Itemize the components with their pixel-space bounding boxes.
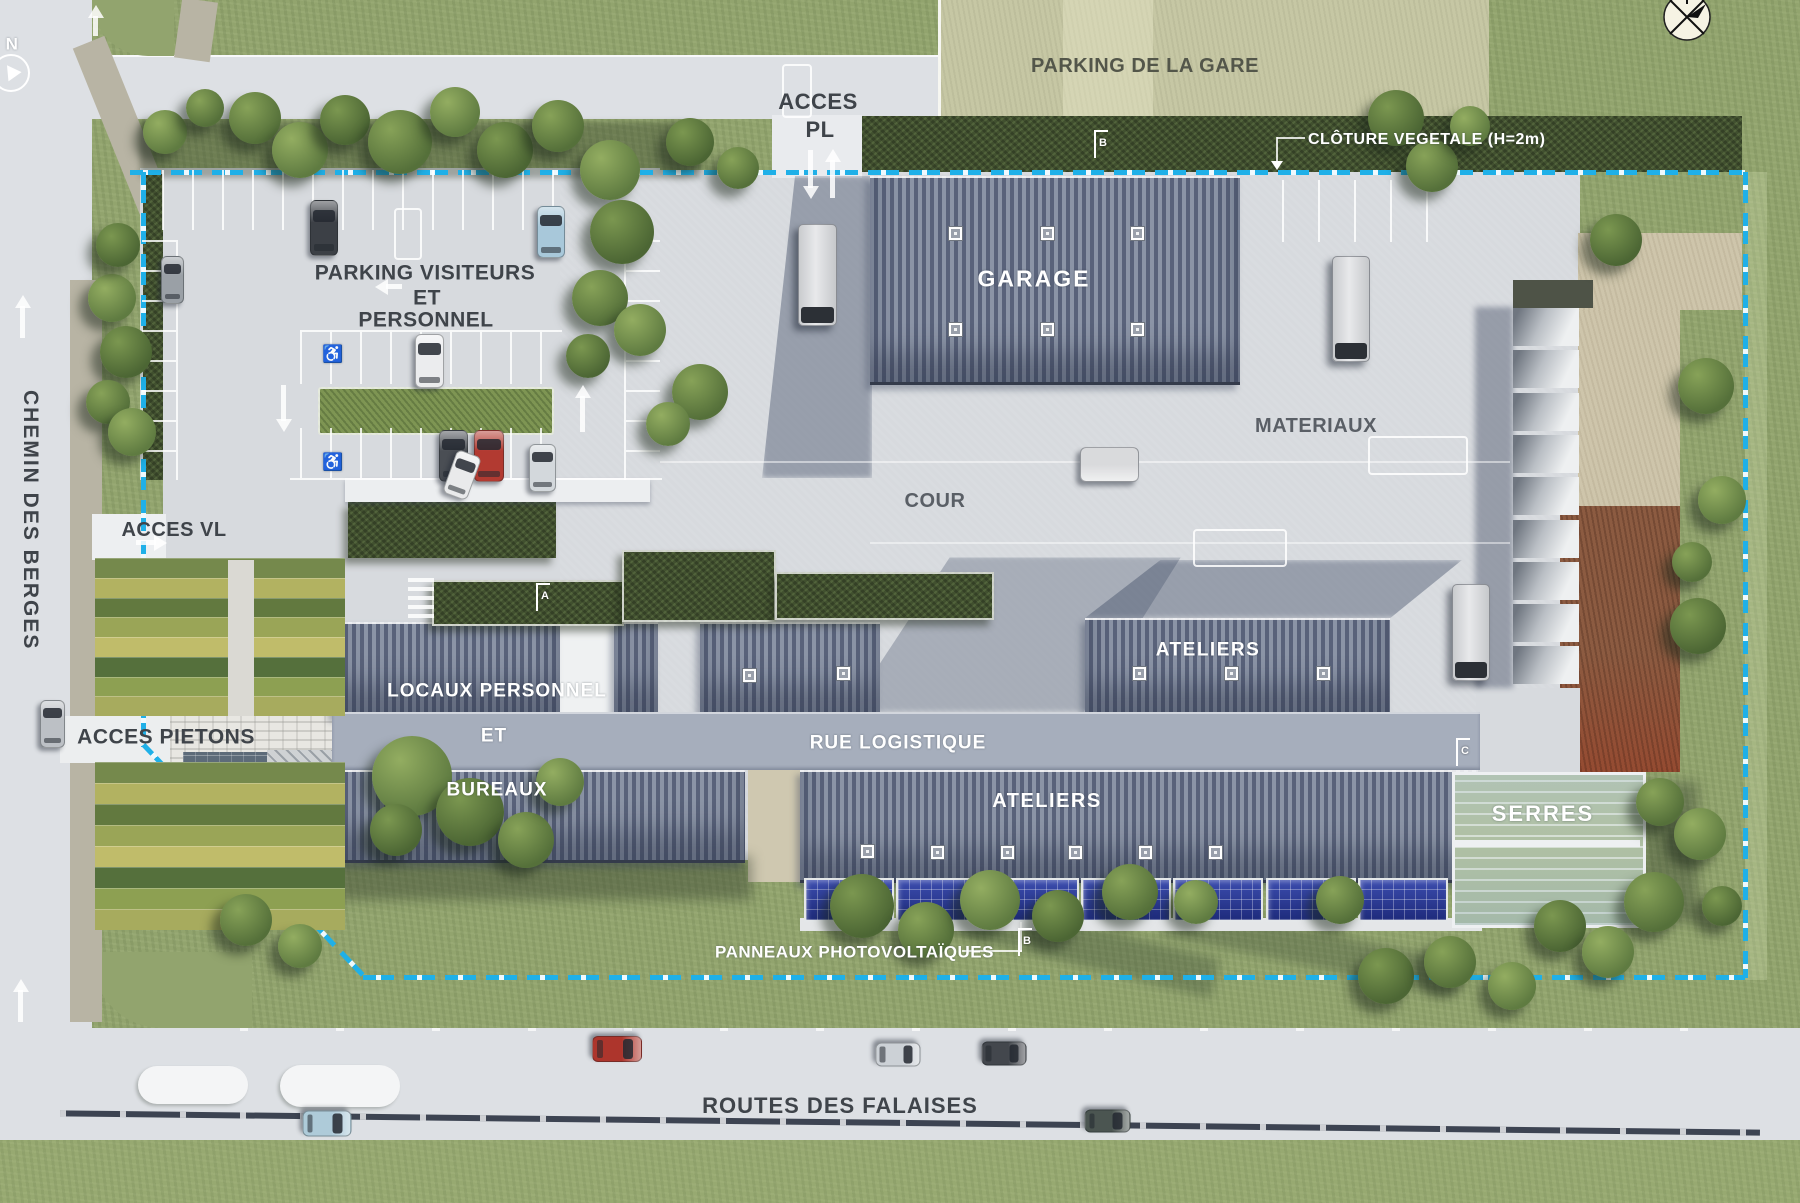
skylight-icon [1224, 666, 1239, 681]
skylight-icon [930, 845, 945, 860]
tree [229, 92, 281, 144]
car [161, 256, 184, 304]
garden-path [228, 560, 254, 716]
tree [1672, 542, 1712, 582]
stall-line [462, 170, 464, 230]
tree [646, 402, 690, 446]
label-et: ET [481, 727, 507, 746]
tree [1636, 778, 1684, 826]
garden-strip [95, 677, 345, 697]
stall-line [360, 428, 362, 478]
crosswalk-bar [408, 596, 434, 600]
tree [1488, 962, 1536, 1010]
skylight-icon [1130, 226, 1145, 241]
label-acces-pl-1: ACCES [778, 91, 858, 113]
tree [566, 334, 610, 378]
skylight-icon [1130, 322, 1145, 337]
lawn-bottom-tint [0, 1140, 1800, 1203]
tree [614, 304, 666, 356]
crosswalk-bar [408, 578, 434, 582]
car-rear-window [986, 1045, 991, 1061]
stall-line [1354, 180, 1356, 242]
top-hedge-band [862, 116, 1742, 172]
garden-strip [95, 696, 345, 716]
stall-line [222, 170, 224, 230]
tree [1670, 598, 1726, 654]
parking-median [318, 387, 554, 435]
label-panneaux: PANNEAUX PHOTOVOLTAÏQUES [715, 944, 994, 961]
stall-line [626, 270, 660, 272]
car-rear-window [597, 1040, 603, 1058]
label-routes-des-falaises: ROUTES DES FALAISES [702, 1095, 978, 1117]
court-lane-line [870, 542, 1510, 544]
stall-line [390, 332, 392, 384]
building-north-wing [700, 622, 880, 717]
material-bay [1513, 308, 1579, 346]
green-roof-hedge [775, 572, 994, 620]
garden-strip [95, 637, 345, 657]
material-bay [1513, 435, 1579, 473]
label-cloture: CLÔTURE VEGETALE (H=2m) [1308, 132, 1545, 148]
garden-strip [95, 804, 345, 825]
truck [1452, 584, 1490, 681]
car-rear-window [1089, 1114, 1094, 1129]
car-windshield [43, 708, 62, 718]
vehicle-outline [1368, 436, 1468, 475]
truck-cab [1455, 662, 1487, 678]
tree [532, 100, 584, 152]
arrow-head-icon [803, 186, 819, 199]
label-cour: COUR [905, 491, 966, 511]
arrow-shaft [20, 306, 25, 338]
vehicle-outline [394, 208, 422, 260]
car-rear-window [447, 484, 466, 495]
tree [1590, 214, 1642, 266]
compass-rose-icon [1660, 0, 1714, 48]
section-marker-b-bottom: B [1018, 928, 1044, 958]
section-marker-b-top: B [1094, 130, 1120, 160]
skylight-icon [948, 226, 963, 241]
car [876, 1042, 921, 1066]
crosswalk-bar [408, 614, 434, 618]
tree [1424, 936, 1476, 988]
car [1084, 1110, 1130, 1133]
skylight-icon [1316, 666, 1331, 681]
car [529, 444, 556, 492]
garden-strip [95, 762, 345, 783]
tree [320, 95, 370, 145]
stall-line [626, 360, 660, 362]
crosswalk-bar [408, 587, 434, 591]
car-windshield [442, 439, 465, 450]
truck [1332, 256, 1370, 362]
tree [370, 804, 422, 856]
site-plan: ♿ ♿ PARKING DE LA GARE ACCES PL CLÔTURE … [0, 0, 1800, 1203]
arrow-shaft [830, 160, 835, 198]
arrow-shaft [580, 396, 585, 432]
car-rear-window [533, 482, 552, 488]
stall-line [1318, 180, 1320, 242]
label-acces-pl-2: PL [805, 119, 834, 141]
label-bureaux: BUREAUX [447, 781, 548, 800]
stall-line [300, 428, 302, 478]
path-tan-top-stub [174, 0, 218, 62]
south-gap-path [748, 770, 800, 882]
label-acces-vl: ACCES VL [121, 520, 226, 540]
stall-line [1390, 180, 1392, 242]
car-rear-window [314, 244, 334, 250]
north-arrow-tip [0, 61, 21, 82]
crosswalk-bar [408, 605, 434, 609]
arrow-head-icon [825, 149, 841, 162]
car-windshield [1112, 1113, 1122, 1130]
car-windshield [477, 439, 501, 450]
boundary-bottom [363, 975, 1745, 980]
material-bay [1513, 350, 1579, 388]
tree [1102, 864, 1158, 920]
garden-strip [95, 578, 345, 598]
skylight-icon [742, 668, 757, 683]
section-marker-letter: B [1099, 137, 1107, 149]
car [40, 700, 65, 748]
skylight-icon [1040, 322, 1055, 337]
tree [830, 874, 894, 938]
stall-line [252, 170, 254, 230]
building-small-mid [614, 622, 658, 717]
arrow-head-icon [276, 419, 292, 432]
bays-top-wall [1513, 280, 1593, 308]
arrow-shaft [93, 16, 98, 36]
car-rear-window [478, 471, 500, 477]
stall-line [624, 240, 626, 480]
truck-cab [1335, 343, 1367, 359]
concrete-below-bays [1476, 688, 1580, 772]
tree [220, 894, 272, 946]
car [537, 206, 565, 258]
tree [1702, 886, 1742, 926]
tree [1678, 358, 1734, 414]
garden-strip [95, 867, 345, 888]
arrow-head-icon [88, 5, 104, 18]
label-rue-logistique: RUE LOGISTIQUE [810, 734, 987, 753]
material-bay [1513, 646, 1579, 684]
arrow-shaft [18, 990, 23, 1022]
garden-strip [95, 598, 345, 618]
label-parking-visiteurs-2: ET [413, 288, 441, 309]
tree [580, 140, 640, 200]
road-edge-ticks [240, 1028, 1740, 1031]
tree [590, 200, 654, 264]
stall-line [142, 240, 176, 242]
cloture-leader-h [1277, 137, 1305, 139]
garden-strip [95, 825, 345, 846]
car-windshield [333, 1113, 343, 1133]
tree [666, 118, 714, 166]
label-materiaux: MATERIAUX [1255, 416, 1377, 436]
stall-line [372, 170, 374, 230]
tree [96, 223, 140, 267]
stall-line [192, 170, 194, 230]
lawn-right-mow-strip [1745, 172, 1767, 980]
car-rear-window [419, 377, 440, 383]
cloture-leader-v [1276, 137, 1278, 161]
arrow-head-icon [13, 979, 29, 992]
tree [1698, 476, 1746, 524]
tree [1174, 880, 1218, 924]
tree [100, 326, 152, 378]
tree [272, 122, 328, 178]
stall-line [300, 332, 302, 384]
stall-line [450, 332, 452, 384]
arrow-shaft [281, 385, 286, 421]
car-rear-window [165, 294, 180, 300]
car-windshield [540, 215, 562, 226]
stall-line [480, 332, 482, 384]
label-parking-visiteurs-3: PERSONNEL [358, 310, 493, 331]
skylight-icon [1068, 845, 1083, 860]
label-acces-pietons: ACCES PIETONS [77, 727, 255, 748]
label-ateliers-top: ATELIERS [1156, 641, 1261, 660]
car-windshield [418, 343, 441, 354]
tree [143, 110, 187, 154]
material-bay [1513, 604, 1579, 642]
tree [1316, 876, 1364, 924]
tree [430, 87, 480, 137]
tree [1624, 872, 1684, 932]
stall-line [360, 332, 362, 384]
green-roof-hedge [622, 550, 776, 622]
tree [477, 122, 533, 178]
tree [278, 924, 322, 968]
car-windshield [313, 210, 335, 222]
tree [498, 812, 554, 868]
material-bay [1513, 562, 1579, 600]
car [415, 334, 444, 388]
section-marker-a: A [536, 583, 562, 613]
road-corner-grass-bottomleft [92, 952, 252, 1028]
tree [960, 870, 1020, 930]
car-windshield [532, 452, 553, 462]
cloture-arrowhead [1271, 161, 1283, 170]
material-bay [1513, 393, 1579, 431]
tree [186, 89, 224, 127]
stall-line [432, 170, 434, 230]
car-windshield [623, 1039, 634, 1059]
tree [1534, 900, 1586, 952]
car [303, 1110, 352, 1136]
section-marker-letter: B [1023, 935, 1031, 947]
garden-strip [95, 617, 345, 637]
label-chemin-des-berges: CHEMIN DES BERGES [20, 390, 41, 650]
tree [1674, 808, 1726, 860]
traffic-island [280, 1065, 400, 1107]
delivery-van [1080, 447, 1139, 482]
arrow-shaft [386, 284, 402, 289]
arrow-shaft [808, 150, 813, 188]
car [592, 1036, 642, 1062]
label-locaux-personnel: LOCAUX PERSONNEL [387, 682, 607, 701]
arrow-head-icon [575, 385, 591, 398]
skylight-icon [1040, 226, 1055, 241]
garden-strip [95, 558, 345, 578]
solar-panel-array [1358, 878, 1448, 922]
skylight-icon [1132, 666, 1147, 681]
handicap-icon: ♿ [322, 454, 344, 471]
car-rear-window [541, 247, 561, 253]
label-serres: SERRES [1492, 803, 1594, 825]
tree [1358, 948, 1414, 1004]
section-marker-c: C [1456, 738, 1482, 768]
car-windshield [164, 264, 181, 274]
stall-line [420, 428, 422, 478]
tree [368, 110, 432, 174]
stall-line [342, 170, 344, 230]
label-ateliers-bottom: ATELIERS [992, 791, 1101, 811]
car-windshield [454, 458, 476, 474]
car-windshield [903, 1045, 912, 1063]
car [982, 1041, 1027, 1065]
garden-strip [95, 783, 345, 804]
skylight-icon [1208, 845, 1223, 860]
skylight-icon [836, 666, 851, 681]
handicap-icon: ♿ [322, 346, 344, 363]
garden-strip [95, 846, 345, 867]
stall-line [510, 332, 512, 384]
arrow-head-icon [15, 295, 31, 308]
stall-line [626, 450, 660, 452]
stall-line [626, 300, 660, 302]
stall-line [522, 170, 524, 230]
tree [1582, 926, 1634, 978]
stall-line [282, 170, 284, 230]
label-garage: GARAGE [978, 268, 1091, 291]
truck-cab [801, 307, 834, 323]
section-marker-letter: A [541, 590, 549, 602]
stall-line [1282, 180, 1284, 242]
material-bay [1513, 477, 1579, 515]
skylight-icon [948, 322, 963, 337]
stall-line [162, 170, 164, 230]
green-roof-hedge [432, 580, 624, 626]
skylight-icon [860, 844, 875, 859]
garden-strip [95, 888, 345, 909]
stall-line [626, 390, 660, 392]
car-rear-window [307, 1114, 313, 1132]
building-locaux-personnel [332, 622, 560, 717]
car-windshield [1009, 1044, 1018, 1062]
tree [88, 274, 136, 322]
tree [108, 408, 156, 456]
north-label: N [6, 36, 19, 53]
gravel-beige [1578, 310, 1680, 506]
garden-strip [95, 657, 345, 677]
stall-line [390, 428, 392, 478]
stall-line [142, 330, 176, 332]
stall-line [540, 332, 542, 384]
traffic-island [138, 1066, 248, 1104]
tree [717, 147, 759, 189]
car-rear-window [880, 1046, 885, 1062]
material-bay [1513, 520, 1579, 558]
stall-line [510, 428, 512, 478]
skylight-icon [1000, 845, 1015, 860]
skylight-icon [1138, 845, 1153, 860]
stall-line [142, 390, 176, 392]
boundary-right [1743, 172, 1748, 978]
canopy-trees-band [348, 502, 556, 558]
truck [798, 224, 837, 326]
vehicle-outline [1193, 529, 1287, 567]
car [310, 200, 338, 256]
label-parking-gare: PARKING DE LA GARE [1031, 56, 1259, 76]
section-marker-letter: C [1461, 745, 1469, 757]
serres-divider [1452, 840, 1640, 847]
label-parking-visiteurs-1: PARKING VISITEURS [315, 263, 535, 284]
stall-line [492, 170, 494, 230]
car-rear-window [44, 738, 61, 744]
